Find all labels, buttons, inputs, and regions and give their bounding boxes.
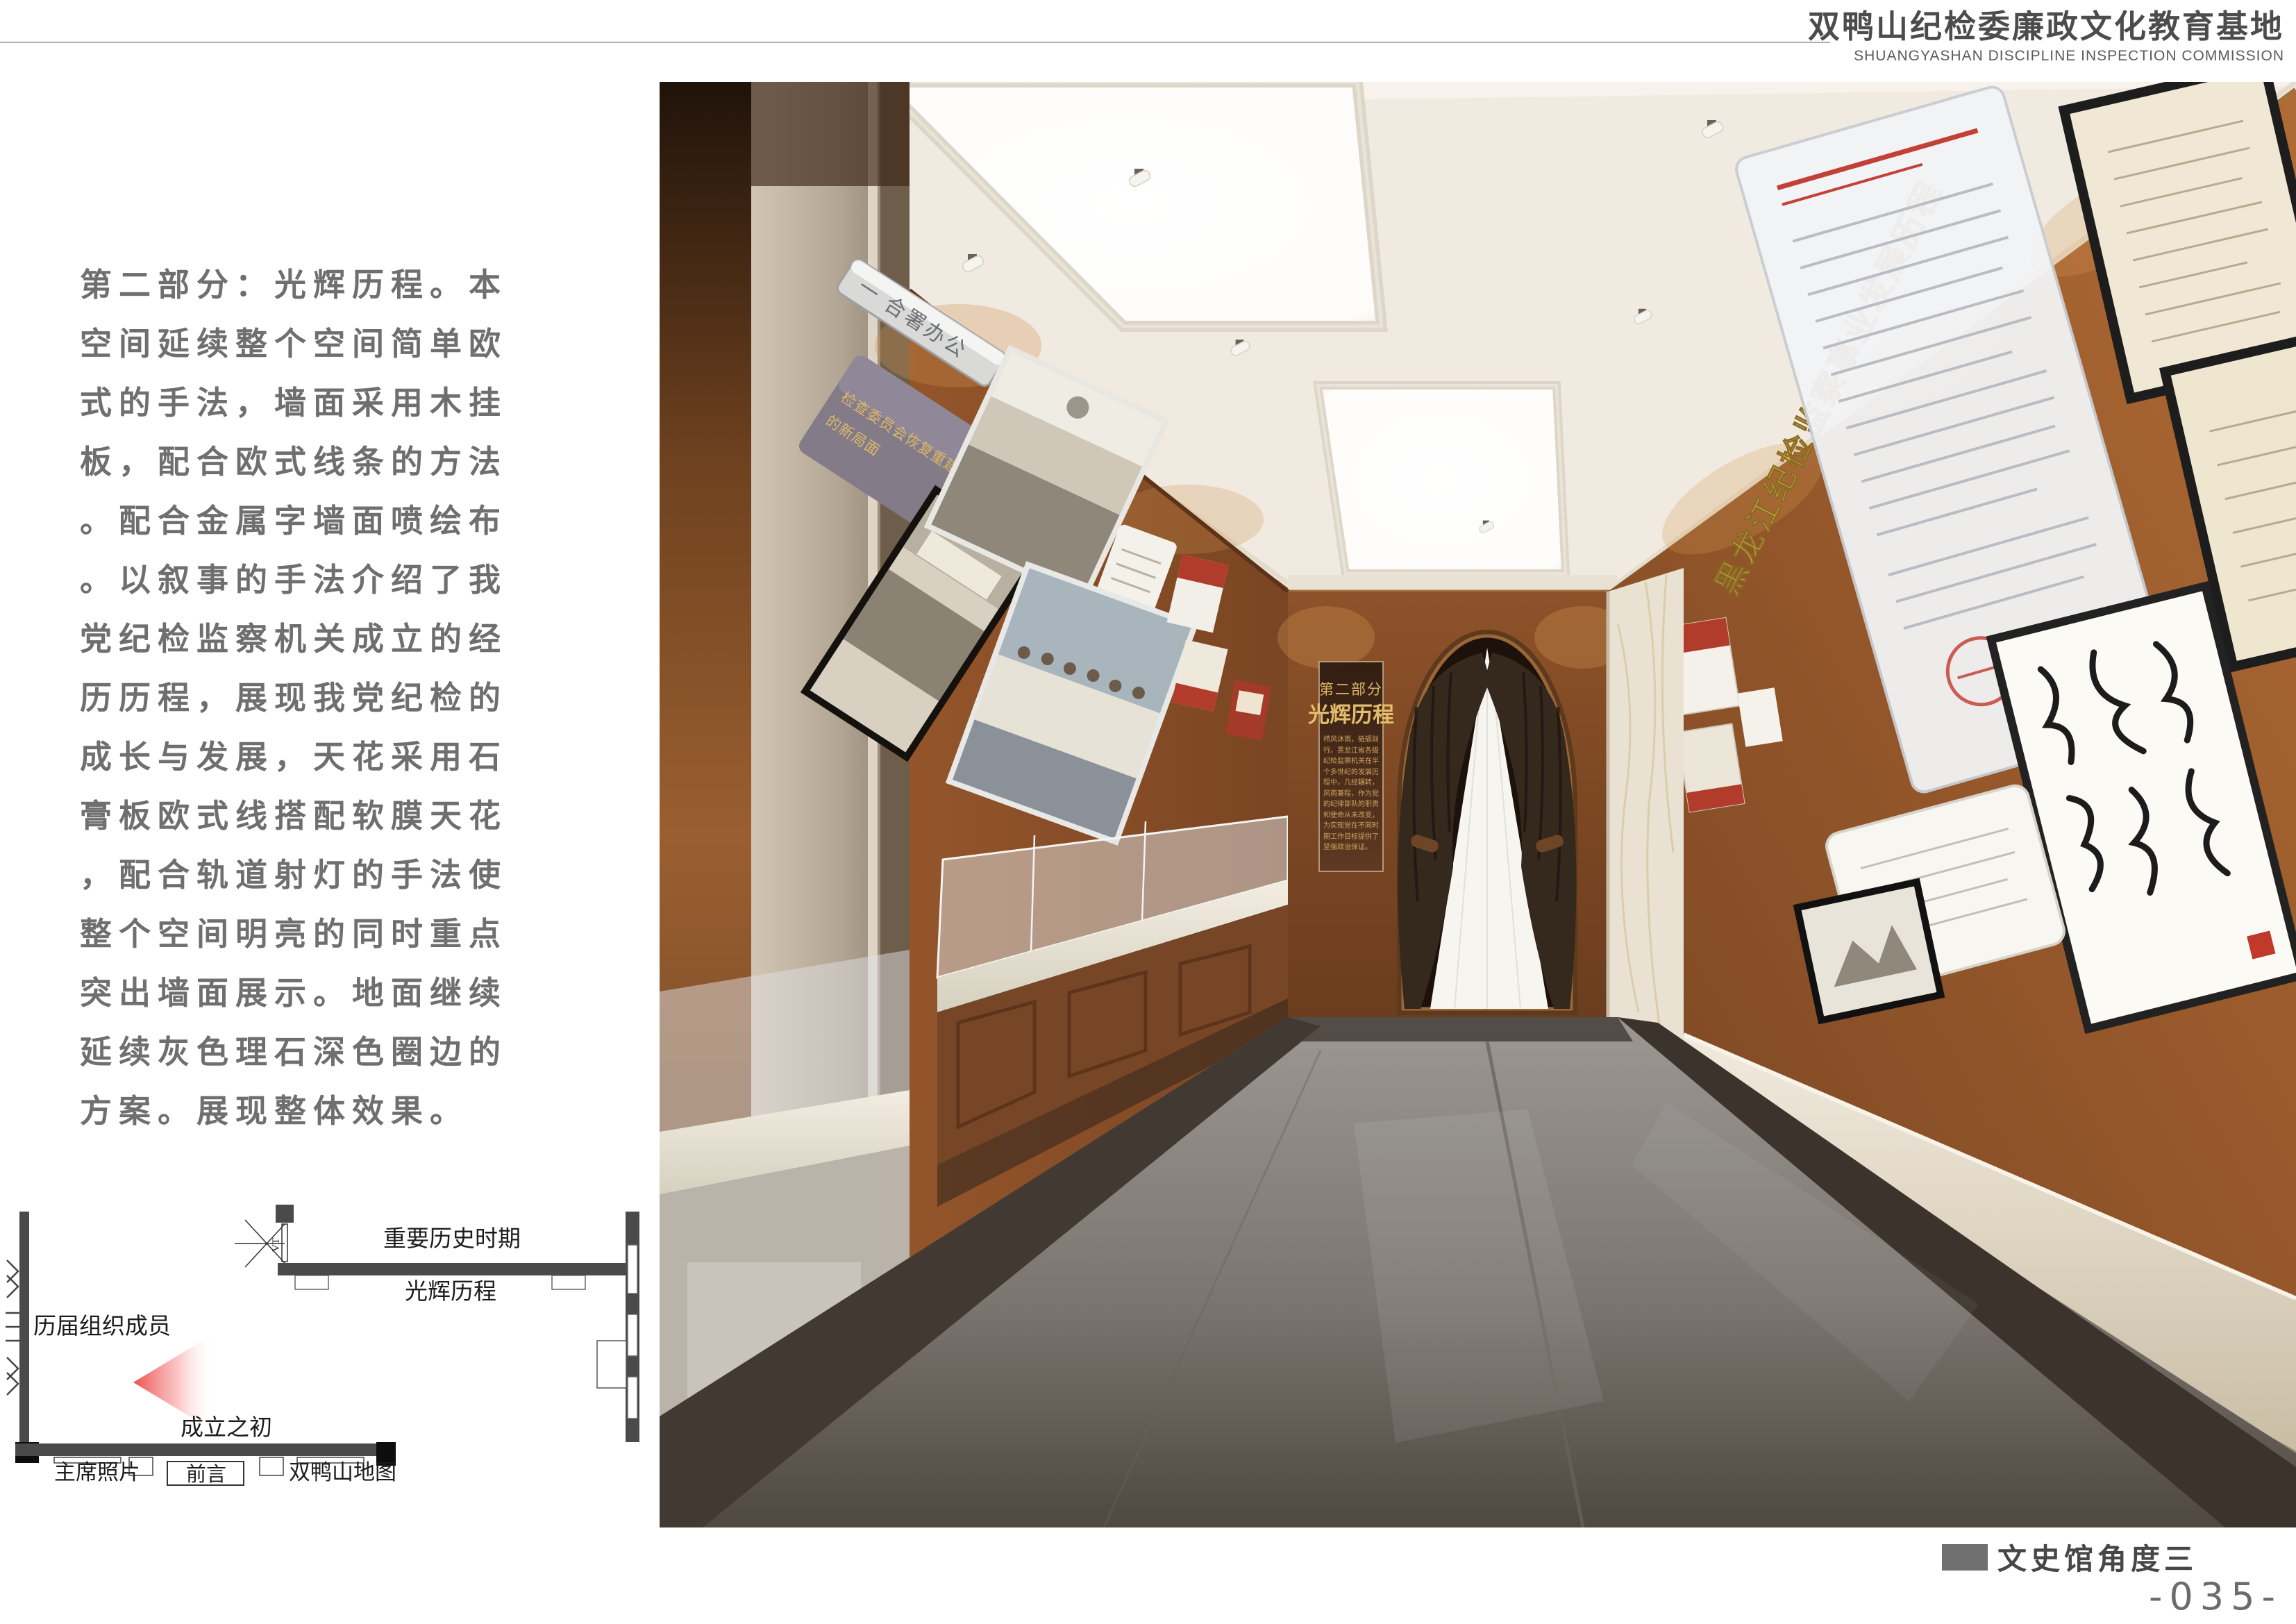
plan-door-label: VT: [271, 1238, 282, 1252]
exhibition-corridor-render: 一 合署办公 检查委员会恢复重建，开创了 的新局面: [660, 82, 2296, 1527]
banner-body-text: 栉风沐雨，砥砺前行。黑龙江省各级纪检监察机关在半个多世纪的发展历程中，几经辗转，…: [1323, 735, 1379, 853]
plan-label-chairman-photos: 主席照片: [54, 1460, 140, 1484]
caption-square-icon: [1942, 1544, 1988, 1571]
plan-label-founding: 成立之初: [181, 1415, 272, 1441]
description-line: 。以叙事的手法介绍了我: [80, 551, 538, 610]
project-title: 双鸭山纪检委廉政文化教育基地: [1808, 10, 2284, 45]
caption-text: 文史馆角度三: [1997, 1536, 2197, 1578]
description-line: 整个空间明亮的同时重点: [80, 905, 538, 964]
description-line: 膏板欧式线搭配软膜天花: [80, 787, 538, 846]
plan-label-preface: 前言: [186, 1463, 226, 1486]
description-line: 突出墙面展示。地面继续: [80, 964, 538, 1023]
description-line: 党纪检监察机关成立的经: [80, 610, 538, 669]
small-poster: [1677, 723, 1744, 812]
plan-label-glorious-course: 光辉历程: [405, 1279, 496, 1305]
page-header: 双鸭山纪检委廉政文化教育基地 SHUANGYASHAN DISCIPLINE I…: [1808, 10, 2284, 65]
end-wall: 第二部分 光辉历程 栉风沐雨，砥砺前行。黑龙江省各级纪检监察机关在半个多世纪的发…: [1277, 592, 1632, 1017]
render-caption: 文史馆角度三: [1942, 1536, 2197, 1578]
design-board-page: 双鸭山纪检委廉政文化教育基地 SHUANGYASHAN DISCIPLINE I…: [0, 0, 2296, 1624]
plan-label-members: 历届组织成员: [33, 1314, 171, 1339]
description-line: 方案。展现整体效果。: [80, 1082, 538, 1141]
design-description: 第二部分：光辉历程。本 空间延续整个空间简单欧 式的手法，墙面采用木挂 板，配合…: [80, 256, 538, 1141]
banner-title: 光辉历程: [1308, 703, 1394, 727]
description-line: 成长与发展，天花采用石: [80, 728, 538, 787]
description-line: 。配合金属字墙面喷绘布: [80, 492, 538, 551]
description-line: 板，配合欧式线条的方法: [80, 433, 538, 492]
section-banner: 第二部分 光辉历程 栉风沐雨，砥砺前行。黑龙江省各级纪检监察机关在半个多世纪的发…: [1308, 662, 1394, 871]
plan-label-important-period: 重要历史时期: [383, 1226, 521, 1252]
plan-door-symbols: [6, 1260, 19, 1395]
floor-plan: VT 重要历史时期 光辉历程 历届组织成员 成立之初 主席照片 前言 双鸭山地图: [6, 1203, 651, 1488]
description-line: 空间延续整个空间简单欧: [80, 315, 538, 374]
header-rule: [0, 42, 1830, 43]
description-line: 历历程，展现我党纪检的: [80, 669, 538, 728]
description-line: 式的手法，墙面采用木挂: [80, 374, 538, 433]
description-line: 第二部分：光辉历程。本: [80, 256, 538, 315]
plan-label-map: 双鸭山地图: [289, 1460, 396, 1484]
description-line: 延续灰色理石深色圈边的: [80, 1023, 538, 1082]
page-number: -035-: [2149, 1575, 2282, 1618]
plan-vt-door: VT: [235, 1220, 287, 1267]
project-subtitle: SHUANGYASHAN DISCIPLINE INSPECTION COMMI…: [1808, 48, 2284, 65]
description-line: ，配合轨道射灯的手法使: [80, 846, 538, 905]
banner-part-label: 第二部分: [1319, 681, 1383, 698]
